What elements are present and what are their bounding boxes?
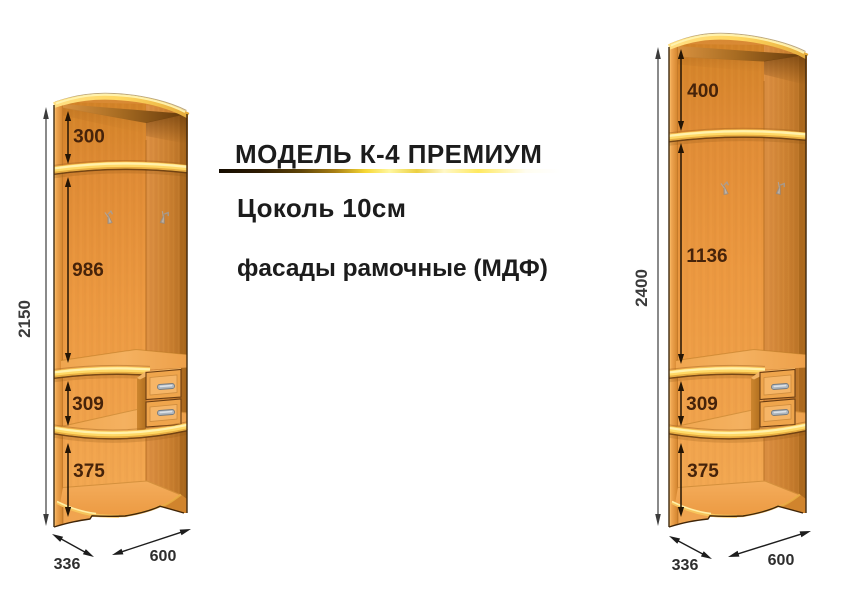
svg-text:2400: 2400: [632, 269, 651, 307]
svg-text:309: 309: [686, 394, 718, 415]
svg-text:986: 986: [72, 260, 104, 281]
svg-text:336: 336: [54, 556, 81, 573]
svg-text:600: 600: [150, 548, 177, 565]
svg-text:600: 600: [768, 552, 795, 569]
svg-text:2150: 2150: [15, 300, 34, 338]
svg-text:336: 336: [672, 557, 699, 574]
svg-text:1136: 1136: [686, 246, 727, 267]
svg-text:300: 300: [73, 127, 105, 148]
svg-text:375: 375: [687, 461, 719, 482]
svg-text:309: 309: [72, 394, 104, 415]
svg-text:400: 400: [687, 81, 719, 102]
svg-text:375: 375: [73, 461, 105, 482]
